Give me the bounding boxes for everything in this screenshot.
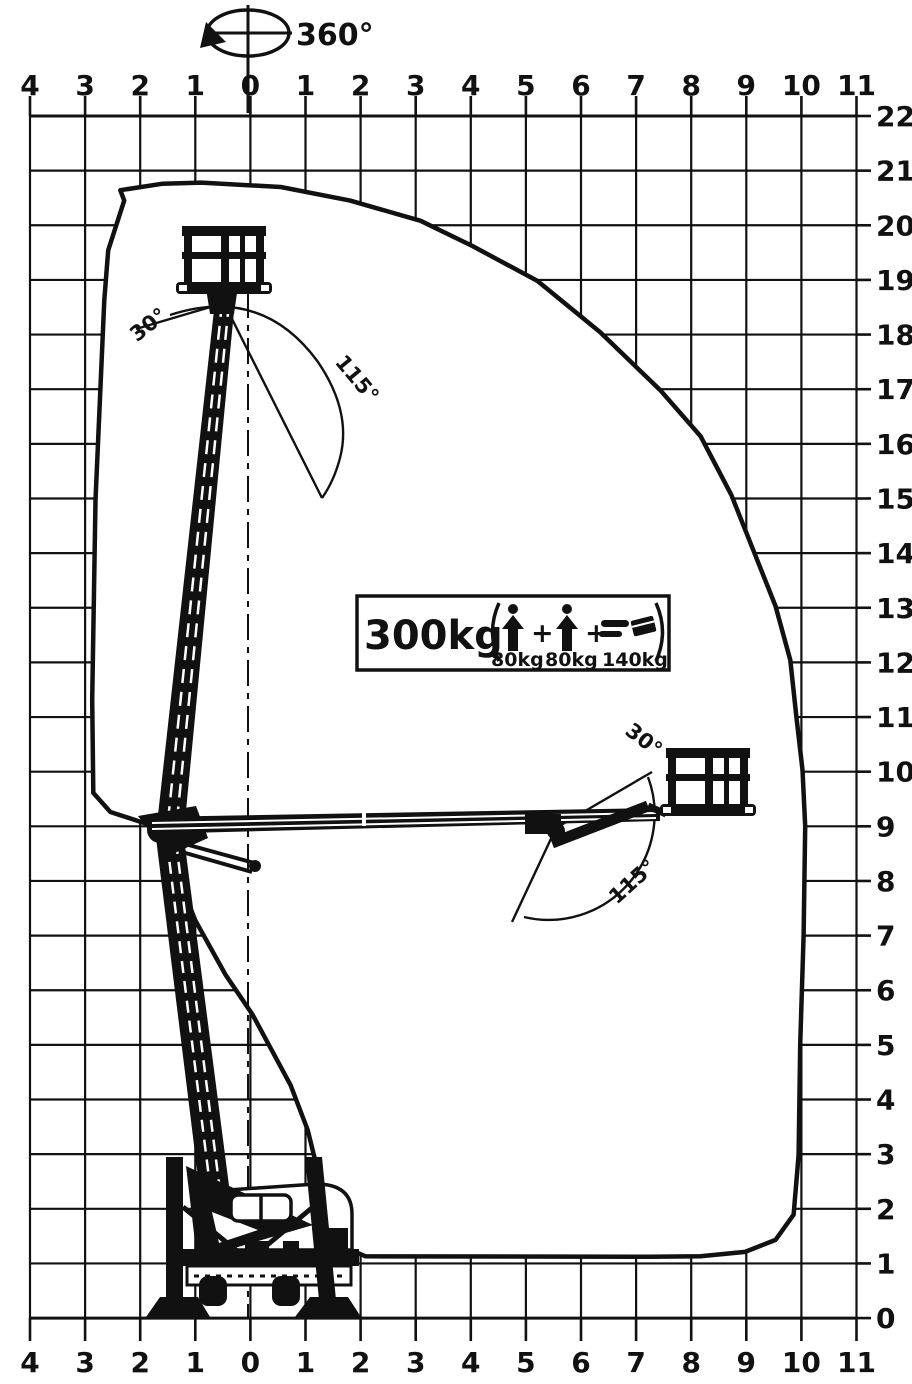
bottom-axis-label: 4 <box>461 1346 480 1379</box>
bottom-axis-label: 3 <box>75 1346 94 1379</box>
rotation-symbol: 360° <box>200 5 374 113</box>
right-axis-label: 13 <box>876 592 912 625</box>
bottom-axis-label: 4 <box>20 1346 39 1379</box>
right-axis-label: 21 <box>876 155 912 188</box>
right-axis-label: 18 <box>876 319 912 352</box>
plus-sign: + <box>531 618 554 649</box>
platform-basket-top <box>176 226 272 294</box>
bottom-axis-label: 9 <box>737 1346 756 1379</box>
max-load-label: 300kg <box>364 613 503 659</box>
bottom-axis-label: 10 <box>782 1346 821 1379</box>
top-axis-label: 1 <box>296 69 315 102</box>
load-rating-box: 300kg + + 80kg 80kg 140kg <box>357 596 669 671</box>
right-axis-label: 0 <box>876 1302 895 1335</box>
top-axis-label: 7 <box>626 69 645 102</box>
right-axis-label: 12 <box>876 646 912 679</box>
wheel-right <box>272 1276 300 1306</box>
top-axis-label: 2 <box>351 69 370 102</box>
bottom-axis-label: 1 <box>186 1346 205 1379</box>
rotation-label: 360° <box>296 18 374 53</box>
top-axis-label: 9 <box>737 69 756 102</box>
top-axis-label: 3 <box>75 69 94 102</box>
operator2-weight: 80kg <box>545 649 598 671</box>
working-envelope-diagram: 4433221100112233445566778899101011112221… <box>0 0 912 1380</box>
reach-diagram-page: 4433221100112233445566778899101011112221… <box>0 0 912 1380</box>
right-axis-label: 1 <box>876 1247 895 1280</box>
top-axis-label: 10 <box>782 69 821 102</box>
right-axis-label: 17 <box>876 373 912 406</box>
right-axis-label: 2 <box>876 1193 895 1226</box>
top-axis-label: 11 <box>837 69 876 102</box>
right-axis-label: 15 <box>876 482 912 515</box>
bottom-axis-label: 11 <box>837 1346 876 1379</box>
bottom-axis-label: 1 <box>296 1346 315 1379</box>
top-axis-label: 6 <box>571 69 590 102</box>
rotation-arrow-icon <box>200 22 226 48</box>
bottom-axis-label: 3 <box>406 1346 425 1379</box>
right-axis-label: 10 <box>876 756 912 789</box>
operator1-weight: 80kg <box>491 649 544 671</box>
bottom-axis-label: 2 <box>351 1346 370 1379</box>
top-axis-label: 1 <box>186 69 205 102</box>
bottom-axis-label: 6 <box>571 1346 590 1379</box>
top-axis-label: 8 <box>681 69 700 102</box>
right-axis-label: 22 <box>876 100 912 133</box>
right-axis-label: 3 <box>876 1138 895 1171</box>
right-axis-label: 11 <box>876 701 912 734</box>
right-axis-label: 7 <box>876 920 895 953</box>
right-axis-label: 16 <box>876 428 912 461</box>
top-axis-label: 4 <box>461 69 480 102</box>
right-axis-label: 6 <box>876 974 895 1007</box>
bottom-axis-label: 8 <box>681 1346 700 1379</box>
top-axis-label: 5 <box>516 69 535 102</box>
bottom-axis-label: 2 <box>130 1346 149 1379</box>
platform-basket-right <box>660 748 756 816</box>
bottom-axis-label: 0 <box>241 1346 260 1379</box>
top-axis-label: 3 <box>406 69 425 102</box>
right-axis-label: 8 <box>876 865 895 898</box>
right-axis-label: 19 <box>876 264 912 297</box>
equipment-weight: 140kg <box>602 649 668 671</box>
right-axis-label: 20 <box>876 209 912 242</box>
top-axis-label: 0 <box>241 69 260 102</box>
right-axis-label: 9 <box>876 810 895 843</box>
top-axis-label: 2 <box>130 69 149 102</box>
bottom-axis-label: 7 <box>626 1346 645 1379</box>
wheel-left <box>199 1276 227 1306</box>
right-axis-label: 4 <box>876 1084 895 1117</box>
right-axis-label: 5 <box>876 1029 895 1062</box>
bottom-axis-label: 5 <box>516 1346 535 1379</box>
right-axis-label: 14 <box>876 537 912 570</box>
top-axis-label: 4 <box>20 69 39 102</box>
